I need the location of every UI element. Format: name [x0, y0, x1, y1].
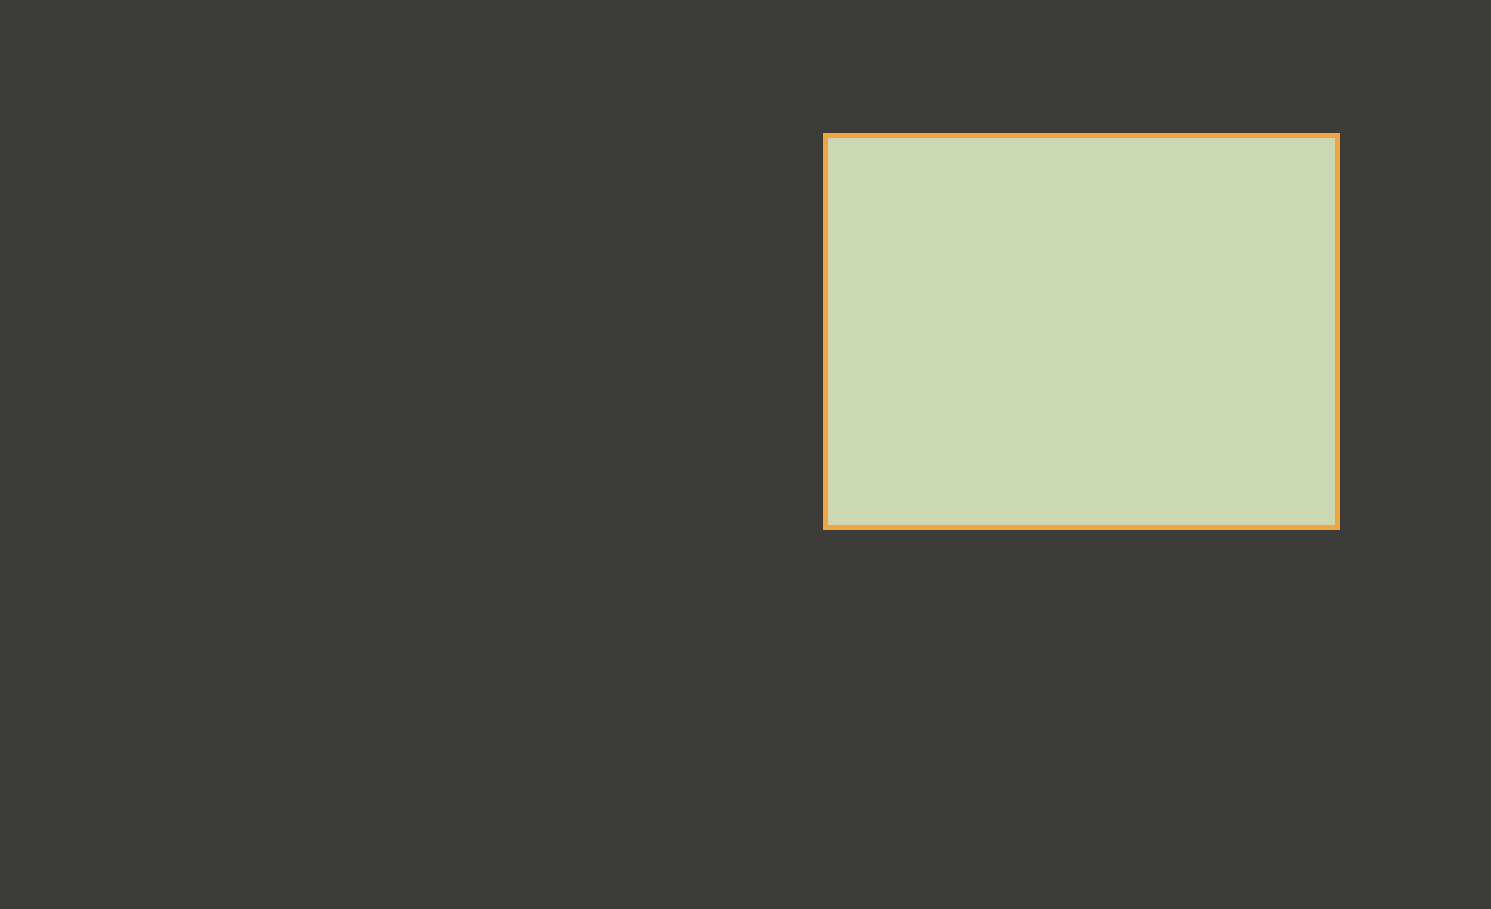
info-row [97, 752, 121, 790]
info-row [97, 866, 121, 904]
slide-canvas [0, 0, 1491, 909]
site-plan-drawing [828, 138, 1335, 525]
info-row [97, 828, 121, 866]
project-info [97, 752, 121, 904]
site-plan-inset [823, 133, 1340, 530]
info-row [97, 790, 121, 828]
